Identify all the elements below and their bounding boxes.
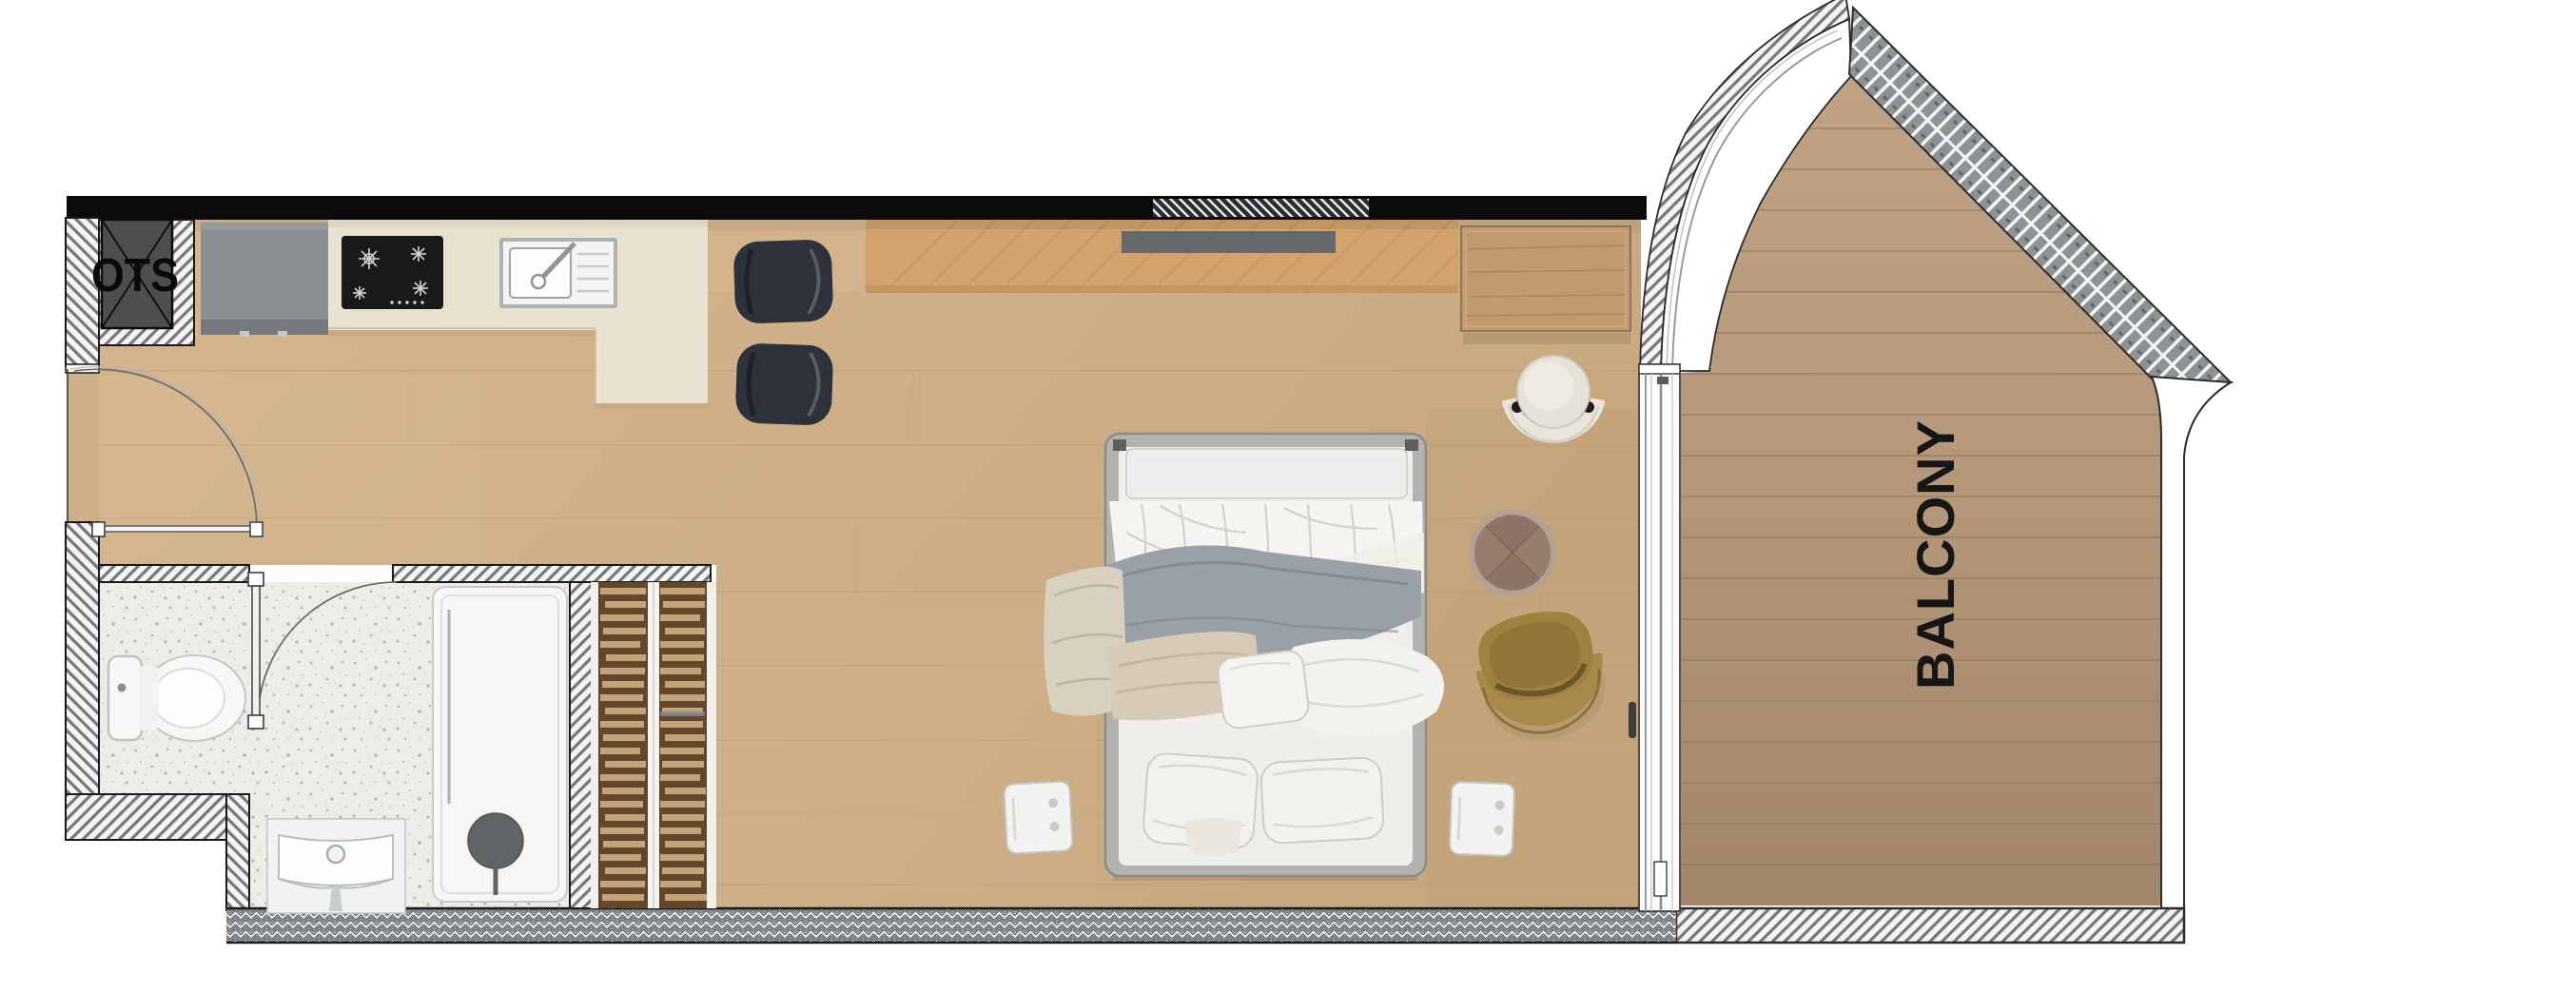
svg-text:BALCONY: BALCONY <box>1905 419 1965 690</box>
svg-text:OTS: OTS <box>91 250 179 302</box>
